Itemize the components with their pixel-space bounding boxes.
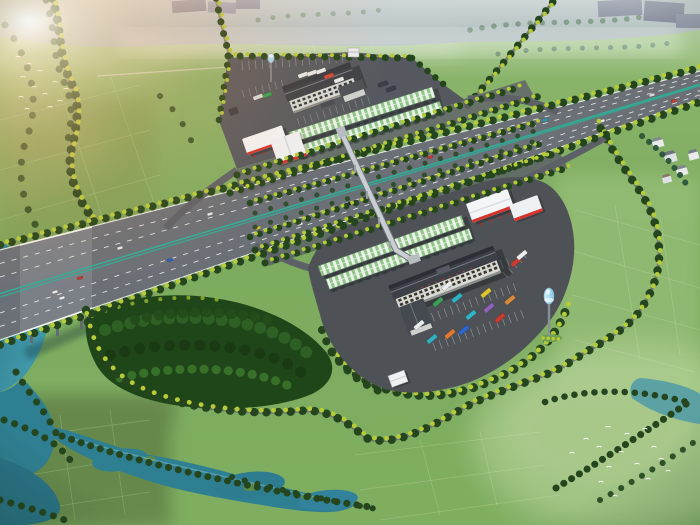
atmosphere [0, 0, 700, 525]
vignette [0, 0, 700, 525]
screenshot-root: Aerial rendering of an expressway servic… [0, 0, 700, 525]
aerial-rendering: Aerial rendering of an expressway servic… [0, 0, 700, 525]
